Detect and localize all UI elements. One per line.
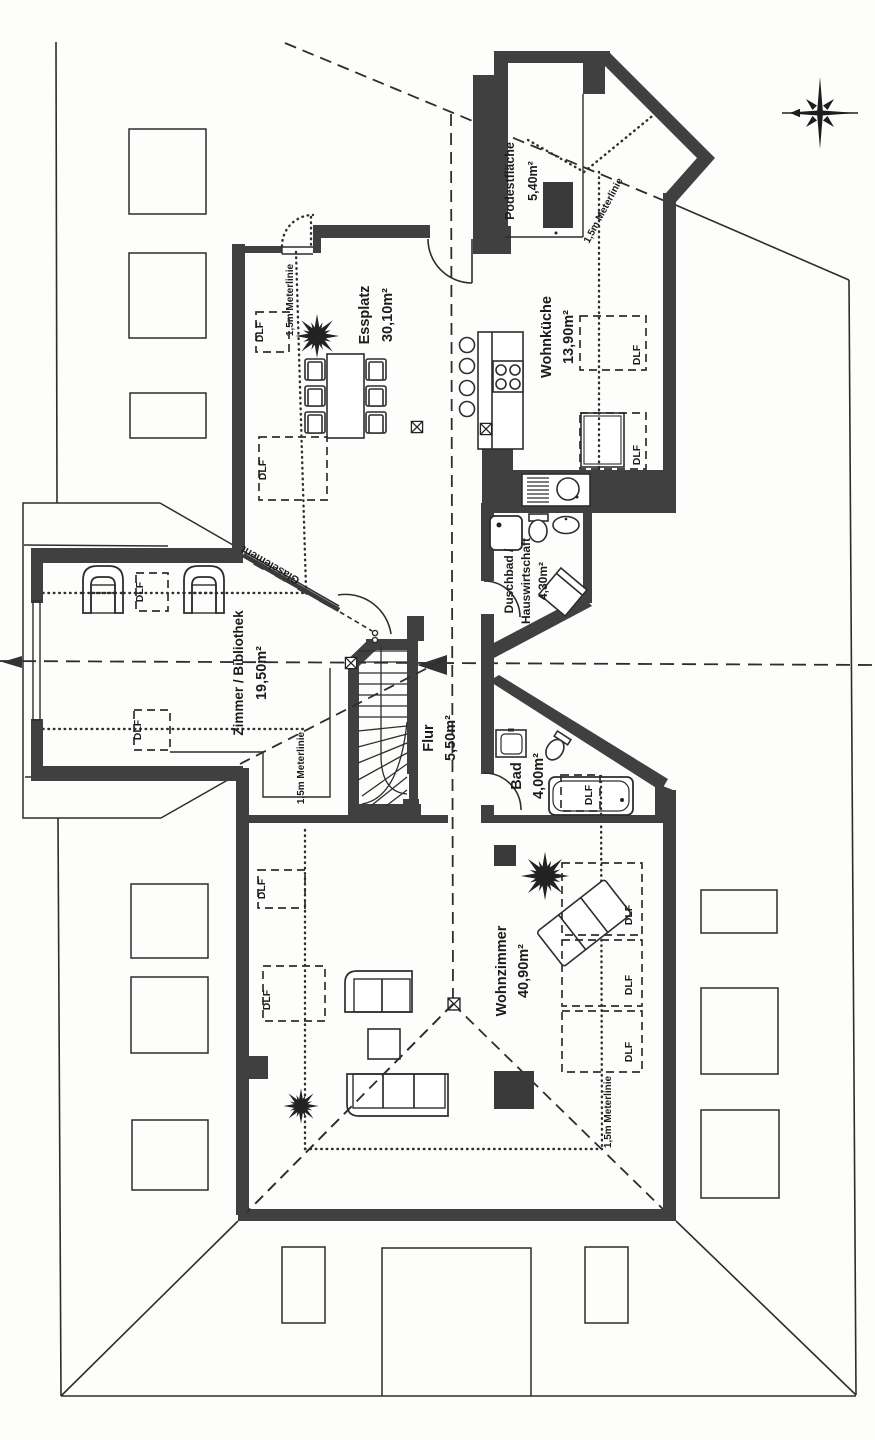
svg-text:Duschbad /: Duschbad / [502,548,516,613]
svg-text:Wohnküche: Wohnküche [539,296,555,378]
svg-text:30,10m²: 30,10m² [380,288,396,342]
svg-text:DLF: DLF [254,321,266,342]
svg-text:1,5m Meterlinie: 1,5m Meterlinie [296,731,307,804]
svg-text:Hauswirtschaft: Hauswirtschaft [519,538,533,624]
svg-text:13,90m²: 13,90m² [561,310,577,364]
svg-text:DLF: DLF [631,444,643,465]
svg-text:DLF: DLF [256,878,268,899]
svg-text:Wohnzimmer: Wohnzimmer [494,925,510,1016]
svg-text:DLF: DLF [261,989,273,1010]
svg-text:Bad: Bad [509,762,525,789]
svg-text:DLF: DLF [132,719,144,740]
svg-text:40,90m²: 40,90m² [516,944,532,998]
svg-text:1,5m Meterlinie: 1,5m Meterlinie [285,263,296,336]
svg-text:DLF: DLF [631,344,643,365]
svg-text:Zimmer / Bibliothek: Zimmer / Bibliothek [231,610,246,736]
svg-text:5,50m²: 5,50m² [443,715,459,761]
svg-text:4,00m²: 4,00m² [531,753,547,799]
svg-text:DLF: DLF [257,459,269,480]
svg-text:DLF: DLF [623,974,635,995]
svg-text:Podestfläche: Podestfläche [503,142,517,220]
svg-text:DLF: DLF [623,904,635,925]
svg-text:Flur: Flur [421,724,437,752]
svg-text:19,50m²: 19,50m² [254,646,270,700]
svg-text:DLF: DLF [134,581,146,602]
svg-text:DLF: DLF [623,1041,635,1062]
svg-text:4,30m²: 4,30m² [536,562,550,600]
svg-text:DLF: DLF [583,784,595,805]
svg-text:5,40m²: 5,40m² [526,161,540,201]
svg-text:1,5m Meterlinie: 1,5m Meterlinie [603,1075,614,1148]
svg-text:Essplatz: Essplatz [357,286,373,345]
